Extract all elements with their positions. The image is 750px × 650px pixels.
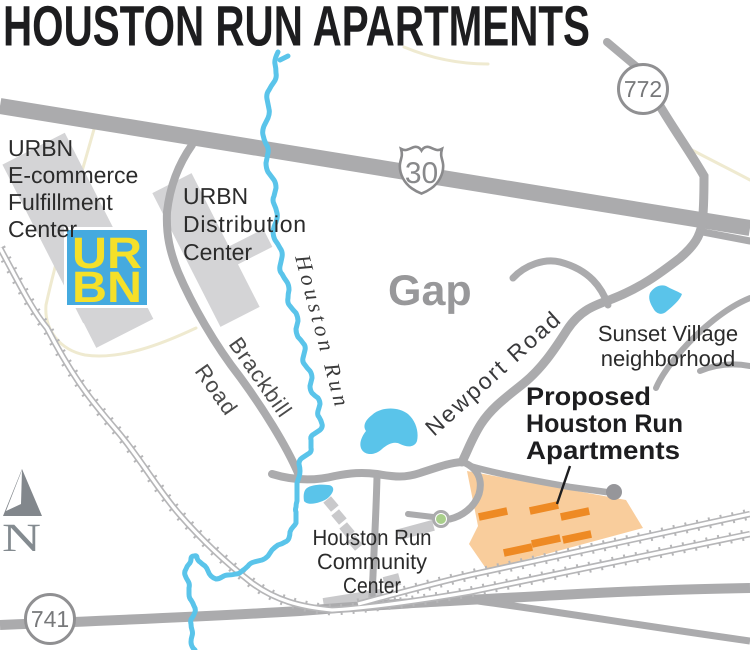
svg-text:URBN: URBN bbox=[8, 135, 73, 161]
svg-text:Center: Center bbox=[183, 239, 252, 265]
svg-text:Community: Community bbox=[317, 549, 427, 574]
svg-text:Apartments: Apartments bbox=[526, 437, 680, 465]
svg-text:Center: Center bbox=[8, 216, 77, 242]
svg-text:741: 741 bbox=[31, 606, 69, 632]
svg-text:772: 772 bbox=[624, 76, 662, 102]
svg-text:HOUSTON RUN APARTMENTS: HOUSTON RUN APARTMENTS bbox=[3, 0, 590, 59]
svg-text:Houston Run: Houston Run bbox=[526, 410, 683, 438]
svg-text:30: 30 bbox=[405, 157, 438, 190]
svg-text:neighborhood: neighborhood bbox=[601, 346, 736, 371]
svg-text:URBN: URBN bbox=[183, 183, 248, 209]
svg-text:Gap: Gap bbox=[388, 267, 472, 315]
svg-text:N: N bbox=[2, 515, 41, 560]
svg-text:Proposed: Proposed bbox=[526, 383, 651, 411]
svg-text:E-commerce: E-commerce bbox=[8, 162, 138, 188]
svg-text:BN: BN bbox=[72, 263, 142, 312]
svg-text:Distribution: Distribution bbox=[183, 211, 306, 237]
svg-text:Houston Run: Houston Run bbox=[313, 525, 432, 550]
svg-text:Center: Center bbox=[343, 573, 401, 598]
svg-text:Fulfillment: Fulfillment bbox=[8, 189, 113, 215]
svg-text:Sunset Village: Sunset Village bbox=[598, 321, 738, 346]
